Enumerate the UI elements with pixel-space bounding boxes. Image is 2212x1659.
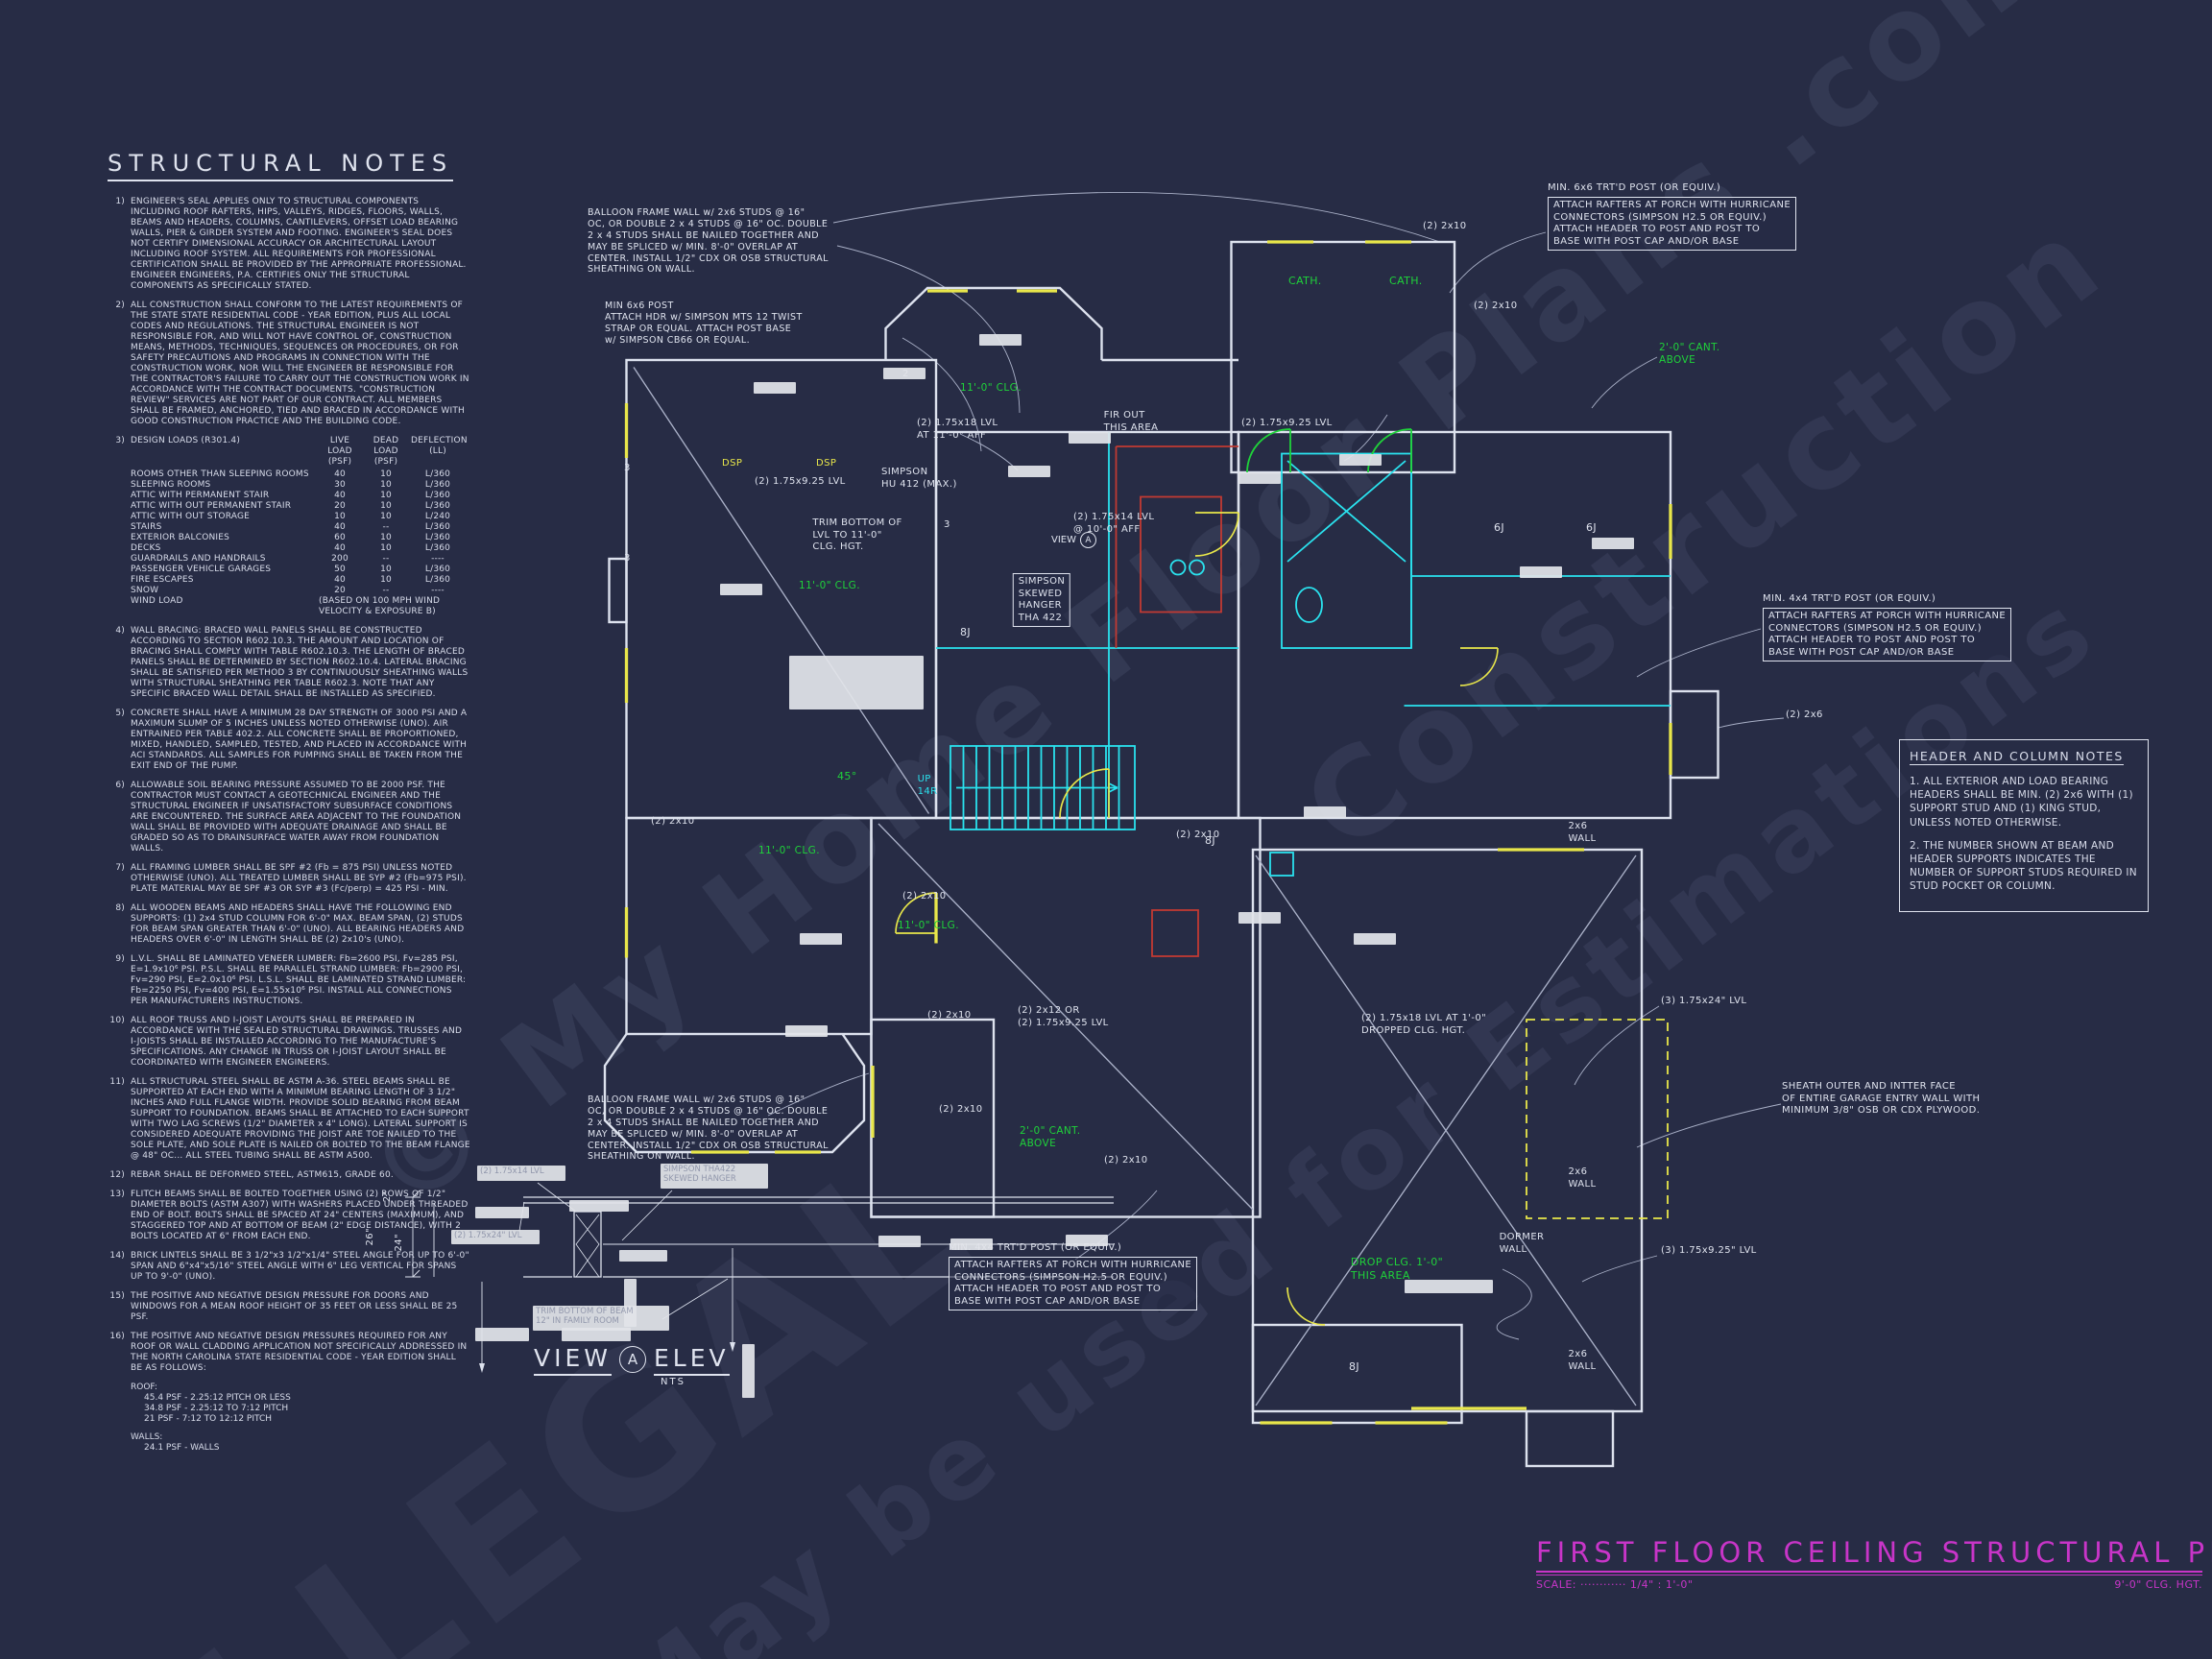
plan-label-trt4x4r-body: ATTACH RAFTERS AT PORCH WITH HURRICANE C…: [1763, 608, 2011, 661]
elev-masked-label: (2) 1.75x14 LVL: [477, 1166, 565, 1181]
masked-dimension-label: [619, 1250, 667, 1262]
view-a-marker-label: VIEW: [1051, 535, 1076, 545]
plan-label-j8a: 8J: [960, 626, 971, 639]
design-loads-wind-row: WIND LOAD(BASED ON 100 MPH WIND VELOCITY…: [131, 596, 470, 617]
sheet-ceiling-height: 9'-0" CLG. HGT.: [2114, 1578, 2202, 1591]
masked-dimension-label: [883, 368, 926, 379]
plan-label-lvl2x12: (2) 2x12 OR (2) 1.75x9.25 LVL: [1018, 1005, 1109, 1029]
design-loads-row: PASSENGER VEHICLE GARAGES5010L/360: [131, 565, 470, 575]
walls-pressures-list: WALLS:24.1 PSF - WALLS: [131, 1432, 470, 1454]
plan-label-lvl925c: (3) 1.75x9.25" LVL: [1661, 1245, 1757, 1258]
plan-label-j8b: 8J: [1205, 834, 1215, 848]
masked-dimension-label: [1066, 1235, 1108, 1246]
plan-label-d24: 24": [394, 1234, 406, 1252]
design-loads-row: SLEEPING ROOMS3010L/360: [131, 480, 470, 491]
title-rule-2: [1536, 1575, 2202, 1575]
design-loads-row: SNOW20------: [131, 586, 470, 596]
design-loads-header: DEFLECTION (LL): [411, 436, 465, 468]
plan-label-x10-c: (2) 2x10: [651, 816, 695, 829]
plan-label-min6x6: MIN 6x6 POST ATTACH HDR w/ SIMPSON MTS 1…: [605, 301, 803, 347]
plan-label-clg-b: 11'-0" CLG.: [799, 580, 860, 592]
structural-note-5: 5)CONCRETE SHALL HAVE A MINIMUM 28 DAY S…: [108, 709, 470, 772]
plan-label-lvl18d: (2) 1.75x18 LVL AT 1'-0" DROPPED CLG. HG…: [1361, 1013, 1486, 1037]
plan-label-sheath: SHEATH OUTER AND INTTER FACE OF ENTIRE G…: [1782, 1081, 1980, 1118]
masked-dimension-label: [475, 1328, 529, 1341]
sheet-scale: SCALE: ············ 1/4" : 1'-0": [1536, 1578, 1693, 1591]
plan-label-x10-g: (2) 2x10: [939, 1104, 983, 1117]
design-loads-row: ROOMS OTHER THAN SLEEPING ROOMS4010L/360: [131, 469, 470, 480]
design-loads-row: FIRE ESCAPES4010L/360: [131, 575, 470, 586]
header-column-notes-box: HEADER AND COLUMN NOTES 1. ALL EXTERIOR …: [1899, 739, 2149, 912]
design-loads-label: DESIGN LOADS (R301.4): [131, 436, 319, 468]
masked-dimension-label: [1238, 472, 1281, 484]
plan-label-w26a: 2x6 WALL: [1569, 821, 1597, 845]
plan-label-j6b: 6J: [1586, 521, 1597, 535]
plan-label-d2: 2": [382, 1190, 395, 1202]
structural-note-10: 10)ALL ROOF TRUSS AND I-JOIST LAYOUTS SH…: [108, 1016, 470, 1069]
structural-note-8: 8)ALL WOODEN BEAMS AND HEADERS SHALL HAV…: [108, 903, 470, 946]
plan-label-n3b: 3: [624, 553, 631, 565]
masked-dimension-label: [785, 1025, 828, 1037]
plan-label-lvl24: (3) 1.75x24" LVL: [1661, 996, 1746, 1008]
plan-label-x10-f: (2) 2x10: [927, 1010, 972, 1022]
plan-label-b2x6: (2) 2x6: [1786, 709, 1823, 722]
structural-note-6: 6)ALLOWABLE SOIL BEARING PRESSURE ASSUME…: [108, 781, 470, 854]
plan-label-cant-top: 2'-0" CANT. ABOVE: [1659, 342, 1719, 367]
masked-dimension-label: [754, 382, 796, 394]
masked-dimension-label: [1520, 566, 1562, 578]
masked-dimension-label: [1008, 466, 1050, 477]
masked-dimension-label: [1592, 538, 1634, 549]
plan-label-deg45: 45°: [837, 770, 857, 783]
plan-label-n3c: 3: [944, 519, 950, 532]
structural-notes-list: 1)ENGINEER'S SEAL APPLIES ONLY TO STRUCT…: [108, 197, 470, 1454]
structural-notes: STRUCTURAL NOTES 1)ENGINEER'S SEAL APPLI…: [108, 150, 470, 1461]
plan-label-hu412: SIMPSON HU 412 (MAX.): [881, 467, 957, 491]
plan-label-firout: FIR OUT THIS AREA: [1104, 410, 1159, 434]
masked-dimension-label: [1339, 454, 1382, 466]
view-elev-elev: ELEV: [654, 1344, 730, 1376]
masked-dimension-label: [720, 584, 762, 595]
design-loads-row: STAIRS40--L/360: [131, 522, 470, 533]
plan-label-j6a: 6J: [1494, 521, 1504, 535]
structural-note-15: 15)THE POSITIVE AND NEGATIVE DESIGN PRES…: [108, 1291, 470, 1323]
elev-masked-label: TRIM BOTTOM OF BEAM 12" IN FAMILY ROOM: [533, 1306, 669, 1331]
view-elev-view: VIEW: [534, 1344, 612, 1376]
plan-label-lvl925b: (2) 1.75x9.25 LVL: [755, 476, 846, 489]
design-loads-header: LIVE LOAD (PSF): [319, 436, 361, 468]
design-loads-row: EXTERIOR BALCONIES6010L/360: [131, 533, 470, 543]
plan-label-lvl925a: (2) 1.75x9.25 LVL: [1241, 418, 1333, 430]
title-block: FIRST FLOOR CEILING STRUCTURAL PLAN SCAL…: [1536, 1536, 2202, 1591]
design-loads-header: DEAD LOAD (PSF): [361, 436, 411, 468]
plan-label-w26c: 2x6 WALL: [1569, 1349, 1597, 1373]
plan-label-clg-a: 11'-0" CLG.: [960, 382, 1022, 395]
structural-note-13: 13)FLITCH BEAMS SHALL BE BOLTED TOGETHER…: [108, 1190, 470, 1242]
plan-label-trt4x4r-title: MIN. 4x4 TRT'D POST (OR EQUIV.): [1763, 593, 1935, 606]
header-column-note-1: 1. ALL EXTERIOR AND LOAD BEARING HEADERS…: [1910, 775, 2138, 829]
masked-dimension-label: [1238, 912, 1281, 924]
masked-dimension-label: [800, 933, 842, 945]
design-loads-row: ATTIC WITH OUT PERMANENT STAIR2010L/360: [131, 501, 470, 512]
view-a-elev-caption: VIEW A ELEV NTS: [534, 1344, 730, 1376]
view-elev-letter: A: [619, 1346, 646, 1373]
structural-note-11: 11)ALL STRUCTURAL STEEL SHALL BE ASTM A-…: [108, 1077, 470, 1162]
masked-dimension-label: [878, 1236, 921, 1247]
design-loads-row: ATTIC WITH OUT STORAGE1010L/240: [131, 512, 470, 522]
structural-note-4: 4)WALL BRACING: BRACED WALL PANELS SHALL…: [108, 626, 470, 700]
blueprint-sheet: © My Home Floor Plans .comILLEGALMay be …: [0, 0, 2212, 1659]
structural-note-1: 1)ENGINEER'S SEAL APPLIES ONLY TO STRUCT…: [108, 197, 470, 292]
structural-notes-title: STRUCTURAL NOTES: [108, 150, 453, 181]
plan-label-cath2: CATH.: [1389, 275, 1423, 288]
plan-label-clg-c: 11'-0" CLG.: [758, 845, 820, 857]
structural-note-2: 2)ALL CONSTRUCTION SHALL CONFORM TO THE …: [108, 301, 470, 427]
masked-dimension-label: [1354, 933, 1396, 945]
plan-label-dsp1: DSP: [722, 458, 742, 470]
plan-label-x10-h: (2) 2x10: [1104, 1155, 1148, 1167]
masked-dimension-label: [742, 1344, 755, 1398]
view-elev-nts: NTS: [661, 1377, 685, 1387]
plan-label-balloon-bot: BALLOON FRAME WALL w/ 2x6 STUDS @ 16" OC…: [588, 1094, 829, 1163]
door-swings-green: [1247, 429, 1411, 472]
header-column-notes-title: HEADER AND COLUMN NOTES: [1910, 749, 2124, 765]
title-rule: [1536, 1571, 2202, 1573]
design-loads-row: GUARDRAILS AND HANDRAILS200------: [131, 554, 470, 565]
plan-label-dsp2: DSP: [816, 458, 836, 470]
masked-dimension-label: [1069, 432, 1111, 444]
design-loads-row: DECKS4010L/360: [131, 543, 470, 554]
masked-dimension-label: [569, 1200, 629, 1212]
plan-label-w26b: 2x6 WALL: [1569, 1166, 1597, 1190]
structural-note-9: 9)L.V.L. SHALL BE LAMINATED VENEER LUMBE…: [108, 954, 470, 1007]
plan-label-trim: TRIM BOTTOM OF LVL TO 11'-0" CLG. HGT.: [812, 517, 902, 554]
header-column-note-2: 2. THE NUMBER SHOWN AT BEAM AND HEADER S…: [1910, 839, 2138, 894]
plan-label-x10-a: (2) 2x10: [1423, 221, 1467, 233]
plan-label-balloon-top: BALLOON FRAME WALL w/ 2x6 STUDS @ 16" OC…: [588, 207, 829, 276]
plan-label-up14r: UP 14R: [918, 774, 938, 798]
masked-dimension-label: [950, 1238, 993, 1250]
sheet-title: FIRST FLOOR CEILING STRUCTURAL PLAN: [1536, 1536, 2202, 1569]
structural-note-7: 7)ALL FRAMING LUMBER SHALL BE SPF #2 (Fb…: [108, 863, 470, 895]
masked-dimension-label: [789, 656, 924, 709]
plan-label-cath1: CATH.: [1288, 275, 1322, 288]
plan-label-lvl18: (2) 1.75x18 LVL AT 11'-0" AFF: [917, 418, 998, 442]
plan-label-lvl14: (2) 1.75x14 LVL @ 10'-0" AFF: [1073, 512, 1154, 536]
masked-dimension-label: [1304, 806, 1346, 818]
plan-label-cant-bot: 2'-0" CANT. ABOVE: [1020, 1125, 1080, 1150]
elev-masked-label: (2) 1.75x24" LVL: [451, 1230, 540, 1244]
design-loads-table: 3)DESIGN LOADS (R301.4)LIVE LOAD (PSF)DE…: [108, 436, 470, 617]
plan-label-j8c: 8J: [1349, 1360, 1359, 1374]
plan-label-skewed: SIMPSON SKEWED HANGER THA 422: [1013, 573, 1070, 627]
plan-label-x10-b: (2) 2x10: [1474, 301, 1518, 313]
masked-dimension-label: [475, 1207, 529, 1218]
plan-label-trt6x6-title: MIN. 6x6 TRT'D POST (OR EQUIV.): [1548, 182, 1720, 195]
structural-note-12: 12)REBAR SHALL BE DEFORMED STEEL, ASTM61…: [108, 1170, 470, 1181]
plan-label-n3a: 3: [624, 463, 631, 475]
leader-lines: [768, 192, 1784, 1339]
masked-dimension-label: [979, 334, 1022, 346]
elev-masked-label: SIMPSON THA422 SKEWED HANGER: [661, 1164, 768, 1189]
design-loads-row: ATTIC WITH PERMANENT STAIR4010L/360: [131, 491, 470, 501]
plan-label-d26: 26": [365, 1228, 377, 1246]
plan-label-x10-e: (2) 2x10: [902, 891, 947, 903]
plan-label-trt4x4b-body: ATTACH RAFTERS AT PORCH WITH HURRICANE C…: [949, 1257, 1197, 1310]
plan-label-dormer: DORMER WALL: [1500, 1232, 1545, 1256]
plan-label-trt6x6-body: ATTACH RAFTERS AT PORCH WITH HURRICANE C…: [1548, 197, 1796, 251]
structural-note-16: 16)THE POSITIVE AND NEGATIVE DESIGN PRES…: [108, 1332, 470, 1374]
masked-dimension-label: [1405, 1280, 1493, 1293]
roof-pressures-list: ROOF:45.4 PSF - 2.25:12 PITCH OR LESS34.…: [131, 1382, 470, 1425]
plan-label-clg-d: 11'-0" CLG.: [898, 920, 959, 932]
plan-label-drop-clg: DROP CLG. 1'-0" THIS AREA: [1351, 1256, 1443, 1283]
structural-note-14: 14)BRICK LINTELS SHALL BE 3 1/2"x3 1/2"x…: [108, 1251, 470, 1283]
